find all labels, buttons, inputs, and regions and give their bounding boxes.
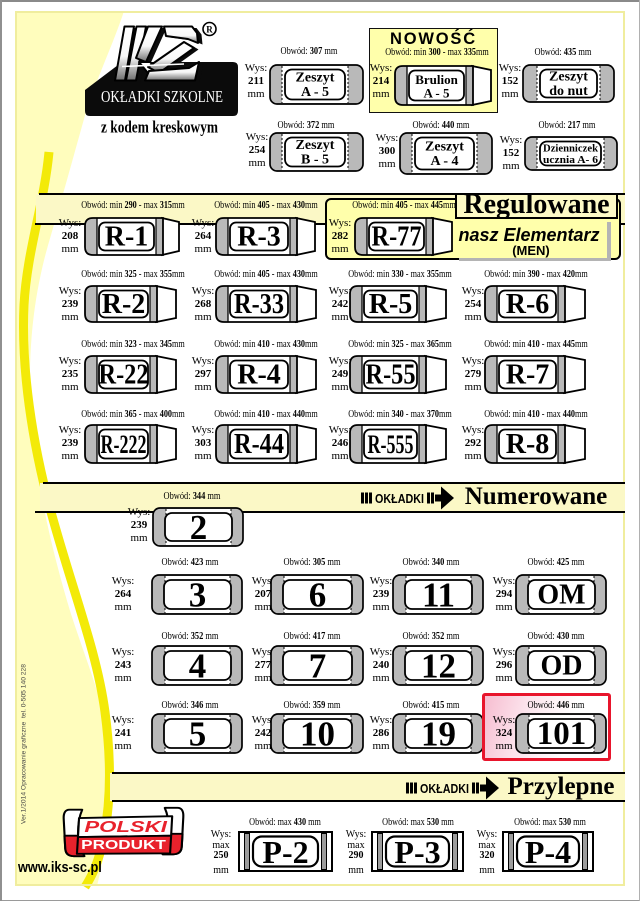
svg-text:ucznia A- 6: ucznia A- 6 xyxy=(543,154,599,166)
svg-text:R-55: R-55 xyxy=(366,360,416,391)
svg-text:12: 12 xyxy=(421,647,456,686)
svg-text:OM: OM xyxy=(537,580,585,611)
svg-text:5: 5 xyxy=(189,715,207,754)
svg-text:11: 11 xyxy=(422,576,455,615)
svg-text:P-4: P-4 xyxy=(525,834,571,870)
svg-text:R-22: R-22 xyxy=(99,360,149,391)
svg-text:19: 19 xyxy=(421,715,456,754)
svg-text:Zeszyt: Zeszyt xyxy=(296,138,335,153)
svg-text:R-1: R-1 xyxy=(105,222,149,253)
svg-text:R-555: R-555 xyxy=(368,430,414,459)
svg-text:Zeszyt: Zeszyt xyxy=(296,70,335,85)
svg-text:P-2: P-2 xyxy=(262,834,308,870)
svg-text:R-8: R-8 xyxy=(506,429,550,460)
svg-text:3: 3 xyxy=(189,576,207,615)
svg-text:A - 5: A - 5 xyxy=(301,85,329,100)
svg-text:10: 10 xyxy=(300,715,335,754)
svg-text:OKŁADKI SZKOLNE: OKŁADKI SZKOLNE xyxy=(101,87,223,106)
svg-text:OKŁADKI: OKŁADKI xyxy=(375,491,424,506)
svg-text:P-3: P-3 xyxy=(394,834,440,870)
svg-text:R-222: R-222 xyxy=(101,430,147,459)
svg-text:Zeszyt: Zeszyt xyxy=(549,69,588,84)
svg-text:OD: OD xyxy=(541,651,583,682)
svg-text:4: 4 xyxy=(189,647,207,686)
svg-text:A - 4: A - 4 xyxy=(431,154,459,169)
svg-text:Zeszyt: Zeszyt xyxy=(425,139,464,154)
svg-text:PRODUKT: PRODUKT xyxy=(81,837,166,852)
svg-text:R: R xyxy=(206,25,213,35)
svg-text:R-3: R-3 xyxy=(237,222,281,253)
svg-text:R-44: R-44 xyxy=(234,429,284,460)
svg-text:Dzienniczek: Dzienniczek xyxy=(543,142,598,154)
svg-text:do nut: do nut xyxy=(549,84,588,99)
svg-text:OKŁADKI: OKŁADKI xyxy=(420,781,469,796)
svg-text:POLSKI: POLSKI xyxy=(84,818,167,836)
svg-text:B - 5: B - 5 xyxy=(301,152,329,167)
svg-text:R-5: R-5 xyxy=(369,289,413,320)
svg-text:R-6: R-6 xyxy=(506,289,550,320)
svg-text:A - 5: A - 5 xyxy=(424,85,451,100)
svg-text:101: 101 xyxy=(537,716,587,752)
svg-text:R-2: R-2 xyxy=(102,289,146,320)
svg-text:R-77: R-77 xyxy=(372,222,422,253)
svg-text:7: 7 xyxy=(309,647,327,686)
svg-text:R-33: R-33 xyxy=(234,289,284,320)
svg-text:6: 6 xyxy=(309,576,327,615)
svg-text:2: 2 xyxy=(190,508,208,547)
svg-text:R-7: R-7 xyxy=(506,360,550,391)
svg-text:R-4: R-4 xyxy=(237,360,281,391)
